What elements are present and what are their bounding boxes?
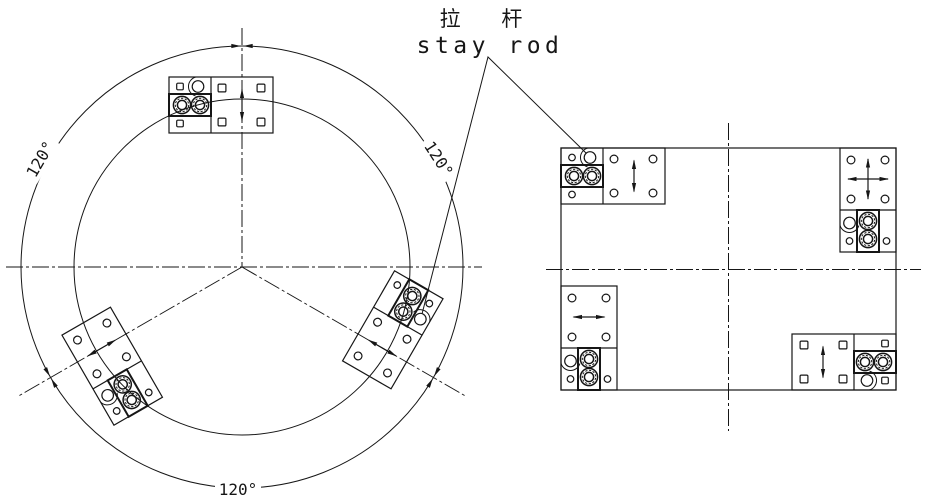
bolt-hole [402, 334, 413, 345]
anchor-bolt [859, 230, 876, 247]
bolt-hole [846, 238, 853, 245]
circle-view: 120°120°120° [6, 28, 482, 496]
bolt-hole [568, 333, 576, 341]
bolt-hole [800, 375, 808, 383]
bolt-hole [102, 318, 113, 329]
bolt-hole [92, 368, 103, 379]
bolt-hole [847, 156, 855, 164]
technical-drawing: 120°120°120° 拉 杆 stay rod [0, 0, 927, 496]
load-cell-module-top-left [561, 148, 665, 204]
anchor-bolt [565, 167, 582, 184]
bolt-hole [382, 368, 393, 379]
bolt-hole [569, 154, 576, 161]
float-direction-arrow [632, 160, 636, 193]
bolt-hole [568, 294, 576, 302]
title-english: stay rod [417, 33, 564, 59]
load-cell-module-lower-right [343, 271, 443, 389]
bolt-hole [144, 388, 153, 397]
anchor-bolt [856, 353, 873, 370]
bolt-hole [218, 84, 226, 92]
load-cell-module-bottom-right [792, 334, 896, 390]
module-outline [62, 307, 162, 425]
bolt-hole [257, 118, 265, 126]
bolt-hole [372, 317, 383, 328]
anchor-bolt [580, 350, 597, 367]
bolt-hole [881, 195, 889, 203]
anchor-bolt [173, 96, 190, 113]
stay-rod-boss [565, 355, 577, 367]
load-cell-module-bottom-left [561, 286, 617, 390]
bolt-hole [353, 351, 364, 362]
bolt-hole [839, 341, 847, 349]
bolt-hole [610, 155, 618, 163]
anchor-bolt [874, 353, 891, 370]
anchor-bolt [583, 167, 600, 184]
bolt-hole [112, 406, 121, 415]
title-chinese: 拉 杆 [440, 7, 529, 31]
rectangular-view [546, 123, 921, 431]
bolt-hole [121, 351, 132, 362]
drawing-geometry: 120°120°120° [6, 28, 921, 496]
stay-rod-boss [192, 81, 204, 93]
bolt-hole [177, 120, 184, 127]
bolt-hole [847, 195, 855, 203]
bolt-hole [649, 155, 657, 163]
bolt-hole [218, 118, 226, 126]
float-direction-arrow [240, 89, 244, 122]
bolt-hole [72, 335, 83, 346]
anchor-bolt [859, 212, 876, 229]
bolt-hole [800, 341, 808, 349]
bolt-hole [882, 377, 889, 384]
stay-rod-boss [584, 152, 596, 164]
bolt-hole [602, 333, 610, 341]
load-cell-module-top [169, 77, 273, 133]
bolt-hole [257, 84, 265, 92]
angle-label-text: 120° [219, 480, 258, 496]
float-direction-arrow [821, 346, 825, 379]
stay-rod-boss [844, 217, 856, 229]
anchor-bolt [580, 368, 597, 385]
bolt-hole [649, 189, 657, 197]
stay-rod-boss [861, 375, 873, 387]
float-direction-arrow [573, 315, 606, 319]
bolt-hole [604, 376, 611, 383]
radial-centerline [242, 267, 465, 396]
bolt-hole [839, 375, 847, 383]
bolt-hole [393, 281, 402, 290]
bolt-hole [883, 238, 890, 245]
bolt-hole [602, 294, 610, 302]
load-cell-module-lower-left [62, 307, 162, 425]
angle-dimension-label: 120° [418, 135, 459, 184]
anchor-bolt [191, 96, 208, 113]
bolt-hole [882, 340, 889, 347]
angle-label-text: 120° [22, 138, 58, 181]
bolt-hole [610, 189, 618, 197]
angle-dimension-label: 120° [215, 480, 261, 496]
bolt-hole [567, 376, 574, 383]
angle-dimension-label: 120° [21, 135, 60, 184]
module-outline [343, 271, 443, 389]
float-direction-arrow [847, 158, 889, 200]
bolt-hole [177, 83, 184, 90]
load-cell-module-top-right [840, 148, 896, 252]
bolt-hole [569, 191, 576, 198]
drawing-canvas: 120°120°120° 拉 杆 stay rod [0, 0, 927, 496]
bolt-hole [425, 299, 434, 308]
bolt-hole [881, 156, 889, 164]
